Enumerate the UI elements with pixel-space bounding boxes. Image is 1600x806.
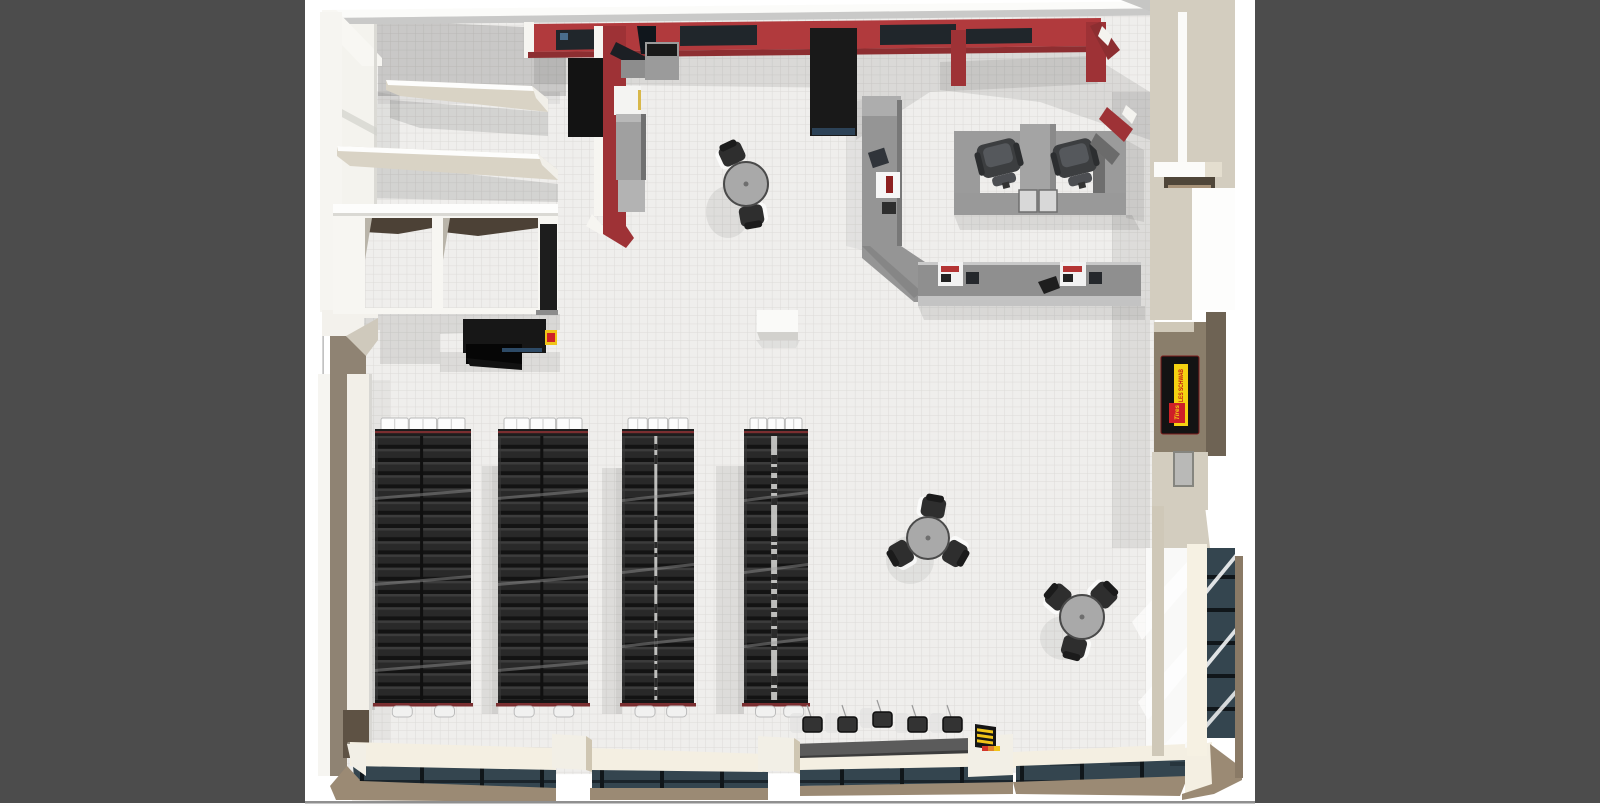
svg-text:LES SCHWAB: LES SCHWAB [1178,369,1185,402]
svg-text:Tires: Tires [1175,404,1181,420]
